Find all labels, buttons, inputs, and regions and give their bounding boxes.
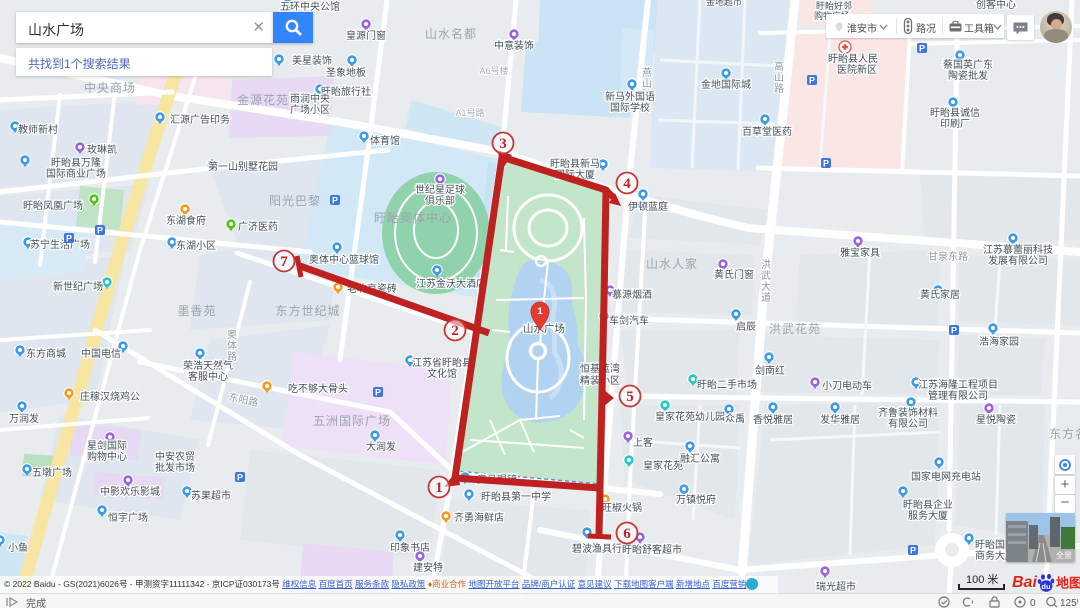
svg-text:江苏海隆工程项目: 江苏海隆工程项目 — [918, 378, 998, 391]
svg-text:P: P — [237, 473, 243, 483]
svg-text:启辰: 启辰 — [736, 320, 756, 333]
svg-text:全景: 全景 — [1056, 550, 1072, 560]
svg-text:中国电信: 中国电信 — [81, 347, 121, 360]
svg-text:车剑汽车: 车剑汽车 — [609, 314, 649, 327]
svg-text:黄氏门窗: 黄氏门窗 — [714, 268, 754, 281]
svg-text:新马外国语: 新马外国语 — [605, 90, 655, 103]
svg-text:汇源广告印务: 汇源广告印务 — [170, 113, 230, 126]
svg-text:融汇公寓: 融汇公寓 — [680, 452, 720, 465]
svg-text:雅宝家具: 雅宝家具 — [840, 246, 880, 259]
svg-text:山: 山 — [642, 78, 652, 90]
svg-text:创客中心: 创客中心 — [976, 0, 1016, 11]
svg-text:瑞光超市: 瑞光超市 — [816, 580, 856, 593]
svg-text:剑南红: 剑南红 — [755, 364, 785, 377]
svg-text:3: 3 — [499, 136, 507, 152]
svg-text:江苏金沃大酒店: 江苏金沃大酒店 — [416, 277, 486, 290]
svg-text:奥: 奥 — [227, 328, 237, 341]
svg-text:2: 2 — [451, 323, 459, 339]
svg-text:国际商业广场: 国际商业广场 — [46, 167, 106, 180]
svg-text:盱眙县新马: 盱眙县新马 — [550, 157, 600, 170]
svg-text:盱眙县人民: 盱眙县人民 — [828, 52, 878, 65]
svg-text:江苏慕蕾丽科技: 江苏慕蕾丽科技 — [983, 243, 1053, 256]
svg-text:地图: 地图 — [1056, 576, 1080, 591]
svg-text:Bai: Bai — [1012, 574, 1037, 591]
svg-text:星悦陶瓷: 星悦陶瓷 — [976, 413, 1016, 426]
svg-text:雨润中央: 雨润中央 — [290, 92, 330, 105]
svg-text:燕: 燕 — [642, 67, 652, 79]
svg-text:众禹: 众禹 — [725, 412, 745, 425]
svg-text:0: 0 — [1030, 598, 1036, 608]
svg-text:有限公司: 有限公司 — [888, 417, 928, 430]
svg-text:P: P — [332, 196, 338, 206]
svg-text:盱眙县第一中学: 盱眙县第一中学 — [481, 490, 551, 503]
svg-text:国际学校: 国际学校 — [610, 101, 650, 114]
svg-text:黄氏家居: 黄氏家居 — [920, 288, 960, 301]
svg-text:体育馆: 体育馆 — [370, 134, 400, 147]
svg-text:庄稼汉烧鸡公: 庄稼汉烧鸡公 — [80, 390, 140, 403]
svg-text:陶瓷批发: 陶瓷批发 — [948, 69, 988, 82]
svg-text:盱眙二手市场: 盱眙二手市场 — [697, 378, 757, 391]
svg-text:国家电网充电站: 国家电网充电站 — [911, 470, 981, 483]
svg-text:4: 4 — [623, 176, 631, 192]
svg-text:125%: 125% — [1060, 598, 1078, 608]
svg-text:A6号楼: A6号楼 — [479, 65, 508, 76]
svg-text:俱乐部: 俱乐部 — [425, 194, 455, 207]
svg-text:山水人家: 山水人家 — [646, 256, 698, 271]
svg-text:山水名都: 山水名都 — [425, 26, 477, 41]
svg-text:A1号路: A1号路 — [455, 107, 484, 118]
svg-text:洪: 洪 — [761, 259, 771, 271]
svg-text:齐鲁装饰材料: 齐鲁装饰材料 — [878, 406, 938, 419]
svg-text:客服中心: 客服中心 — [188, 370, 228, 383]
svg-text:1: 1 — [435, 480, 443, 496]
svg-text:1: 1 — [537, 306, 543, 317]
svg-text:7: 7 — [280, 254, 288, 270]
svg-text:金源花苑: 金源花苑 — [237, 92, 289, 107]
svg-text:武: 武 — [761, 269, 771, 282]
svg-text:中安农贸: 中安农贸 — [155, 450, 195, 463]
svg-text:玫琳凯: 玫琳凯 — [87, 143, 117, 156]
svg-text:建安特: 建安特 — [413, 561, 443, 574]
svg-text:盱眙凤凰广场: 盱眙凤凰广场 — [23, 199, 83, 212]
svg-text:圣象地板: 圣象地板 — [326, 66, 366, 79]
svg-text:发展有限公司: 发展有限公司 — [988, 254, 1048, 267]
svg-text:万润发: 万润发 — [9, 412, 39, 425]
svg-text:吃不够大骨头: 吃不够大骨头 — [288, 382, 348, 395]
svg-text:中影欢乐影城: 中影欢乐影城 — [100, 485, 160, 498]
svg-text:苏果超市: 苏果超市 — [191, 489, 231, 502]
svg-text:P: P — [910, 546, 916, 556]
svg-text:五墩广场: 五墩广场 — [32, 466, 72, 479]
svg-text:教师新村: 教师新村 — [18, 123, 58, 136]
svg-text:盱眙舒客超市: 盱眙舒客超市 — [622, 543, 682, 556]
svg-text:小刀电动车: 小刀电动车 — [822, 379, 872, 392]
svg-text:医院新区: 医院新区 — [837, 63, 877, 76]
svg-text:洪武花苑: 洪武花苑 — [769, 321, 821, 336]
svg-text:碧波渔具行: 碧波渔具行 — [572, 542, 622, 555]
svg-text:P: P — [919, 44, 925, 54]
svg-text:山: 山 — [774, 72, 784, 84]
svg-text:百草堂医药: 百草堂医药 — [742, 126, 792, 138]
svg-text:购物中心: 购物中心 — [87, 450, 127, 463]
svg-text:发华雅居: 发华雅居 — [820, 413, 860, 426]
svg-text:盱眙县企业: 盱眙县企业 — [903, 498, 953, 511]
svg-text:盱眙县诚信: 盱眙县诚信 — [930, 106, 980, 119]
svg-text:P: P — [97, 226, 103, 236]
svg-text:文化馆: 文化馆 — [427, 367, 457, 380]
svg-text:新世纪广场: 新世纪广场 — [53, 280, 103, 293]
svg-text:金地超市: 金地超市 — [706, 0, 742, 7]
svg-text:盱眙好邻: 盱眙好邻 — [816, 0, 852, 11]
svg-text:东方商城: 东方商城 — [26, 347, 66, 360]
svg-text:皇源门窗: 皇源门窗 — [346, 29, 386, 42]
svg-text:旺椒火锅: 旺椒火锅 — [602, 501, 642, 514]
svg-text:路: 路 — [774, 82, 784, 95]
svg-text:齐勇海鲜店: 齐勇海鲜店 — [454, 511, 504, 524]
svg-text:美星装饰: 美星装饰 — [292, 54, 332, 67]
svg-text:甘泉东路: 甘泉东路 — [928, 250, 968, 263]
svg-text:du: du — [1041, 582, 1051, 591]
svg-text:荣浩天然气: 荣浩天然气 — [183, 359, 233, 372]
svg-text:东方名居: 东方名居 — [1049, 426, 1080, 441]
svg-text:墨香苑: 墨香苑 — [177, 304, 216, 318]
svg-text:江苏省盱眙县: 江苏省盱眙县 — [412, 356, 472, 369]
svg-text:苏宁生活广场: 苏宁生活广场 — [30, 238, 90, 251]
svg-text:中央商场: 中央商场 — [84, 80, 136, 95]
svg-text:印刷厂: 印刷厂 — [940, 118, 970, 130]
svg-text:广场小区: 广场小区 — [290, 103, 330, 116]
svg-text:第一山别墅花园: 第一山别墅花园 — [208, 160, 278, 173]
svg-text:P: P — [951, 326, 957, 336]
svg-text:道: 道 — [761, 291, 771, 304]
svg-text:五洲国际广场: 五洲国际广场 — [313, 414, 391, 428]
svg-text:皇家花苑幼儿园: 皇家花苑幼儿园 — [655, 410, 725, 423]
svg-text:服务大厦: 服务大厦 — [908, 509, 948, 522]
svg-text:东湖小区: 东湖小区 — [176, 239, 216, 252]
svg-text:慕源烟酒: 慕源烟酒 — [612, 288, 652, 301]
svg-text:东湖食府: 东湖食府 — [166, 214, 206, 227]
svg-text:浩海家园: 浩海家园 — [979, 335, 1019, 348]
svg-text:伊顿蓝庭: 伊顿蓝庭 — [628, 200, 668, 213]
svg-text:上客: 上客 — [633, 436, 653, 449]
svg-text:香悦雅居: 香悦雅居 — [753, 413, 793, 426]
svg-text:东方世纪城: 东方世纪城 — [275, 303, 340, 318]
svg-text:阳光巴黎: 阳光巴黎 — [269, 194, 321, 208]
svg-text:P: P — [375, 388, 381, 398]
svg-text:蔡国英广东: 蔡国英广东 — [943, 58, 993, 71]
svg-text:中意装饰: 中意装饰 — [494, 39, 534, 52]
svg-text:世纪星足球: 世纪星足球 — [415, 183, 465, 196]
svg-text:盱眙县万隆: 盱眙县万隆 — [51, 156, 101, 169]
svg-text:万镇悦府: 万镇悦府 — [676, 493, 716, 506]
svg-text:管理有限公司: 管理有限公司 — [928, 389, 988, 402]
svg-text:小鱼: 小鱼 — [8, 541, 28, 554]
svg-text:P: P — [66, 234, 72, 244]
svg-text:6: 6 — [623, 526, 631, 542]
svg-text:皇家花苑: 皇家花苑 — [643, 459, 683, 472]
svg-text:5: 5 — [626, 389, 634, 405]
svg-text:恒宇广场: 恒宇广场 — [108, 511, 148, 524]
svg-text:批发市场: 批发市场 — [155, 461, 195, 474]
svg-text:高: 高 — [774, 60, 784, 73]
svg-text:盱眙奥体中心: 盱眙奥体中心 — [374, 210, 452, 225]
svg-text:P: P — [809, 76, 815, 86]
svg-text:星剑国际: 星剑国际 — [87, 439, 127, 452]
svg-text:金地国际城: 金地国际城 — [701, 78, 751, 91]
svg-text:P: P — [823, 159, 829, 169]
svg-text:体: 体 — [227, 340, 237, 352]
svg-text:大: 大 — [761, 280, 771, 293]
svg-text:大润发: 大润发 — [366, 440, 396, 453]
svg-text:广济医药: 广济医药 — [238, 220, 278, 233]
svg-text:奥体中心篮球馆: 奥体中心篮球馆 — [309, 253, 379, 266]
